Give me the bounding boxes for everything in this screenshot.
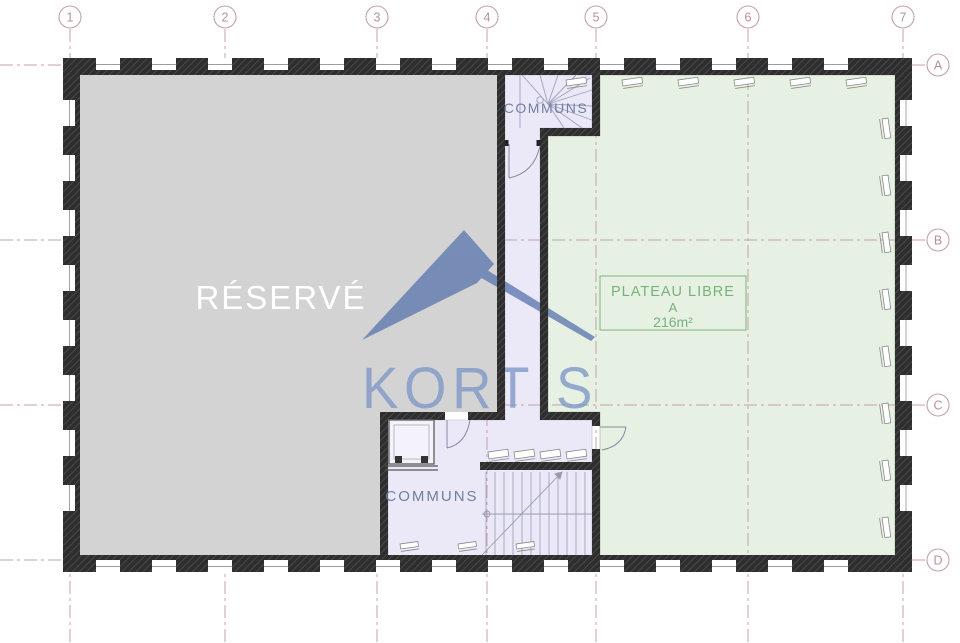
window xyxy=(488,560,512,572)
window xyxy=(544,560,568,572)
window xyxy=(712,58,736,70)
floor-plan-svg: 1 2 3 4 5 6 7 A B C D KORTIS xyxy=(0,0,960,643)
window xyxy=(63,100,75,126)
window xyxy=(320,560,344,572)
grid-label-C: C xyxy=(933,399,942,413)
window xyxy=(656,560,680,572)
window xyxy=(63,155,75,181)
window xyxy=(96,58,120,70)
window xyxy=(264,560,288,572)
window xyxy=(63,430,75,456)
window xyxy=(432,58,456,70)
window xyxy=(656,58,680,70)
grid-label-B: B xyxy=(934,234,942,248)
floor-plan-page: 1 2 3 4 5 6 7 A B C D KORTIS xyxy=(0,0,960,643)
grid-label-3: 3 xyxy=(374,11,381,25)
window xyxy=(208,58,232,70)
window xyxy=(63,485,75,511)
plateau-name: PLATEAU LIBRE xyxy=(611,284,735,300)
wall-stair-room-right xyxy=(592,75,600,136)
communs-top-label: COMMUNS xyxy=(504,100,588,116)
window xyxy=(376,560,400,572)
window xyxy=(320,58,344,70)
window xyxy=(264,58,288,70)
plateau-area: 216m² xyxy=(653,314,693,330)
grid-label-1: 1 xyxy=(67,11,74,25)
window xyxy=(152,560,176,572)
wall-communs-top-a xyxy=(380,412,445,420)
window xyxy=(768,58,792,70)
plateau-unit: A xyxy=(669,300,678,315)
window xyxy=(208,560,232,572)
window xyxy=(544,58,568,70)
window xyxy=(768,560,792,572)
window xyxy=(600,58,624,70)
window xyxy=(488,58,512,70)
grid-label-7: 7 xyxy=(900,11,907,25)
communs-bottom-label: COMMUNS xyxy=(385,488,478,505)
wall-corridor-right xyxy=(540,136,548,420)
wall-stair-room-bottom xyxy=(540,128,600,136)
window xyxy=(96,560,120,572)
grid-label-A: A xyxy=(934,59,943,73)
wall-communs-right-upper xyxy=(592,412,600,426)
window xyxy=(824,58,848,70)
kortis-brand-text: KORTIS xyxy=(362,356,598,421)
window xyxy=(63,320,75,346)
window xyxy=(600,560,624,572)
window xyxy=(432,560,456,572)
grid-label-4: 4 xyxy=(484,11,491,25)
grid-label-6: 6 xyxy=(745,11,752,25)
wall-communs-right-lower xyxy=(592,449,600,557)
wall-sanitary xyxy=(480,462,592,470)
window xyxy=(63,265,75,291)
reserved-label: RÉSERVÉ xyxy=(195,279,366,316)
wall-corridor-left xyxy=(497,75,505,420)
elevator xyxy=(385,420,438,470)
window xyxy=(63,210,75,236)
wall-communs-top-b xyxy=(468,412,505,420)
window xyxy=(152,58,176,70)
grid-label-5: 5 xyxy=(593,11,600,25)
window xyxy=(63,375,75,401)
window xyxy=(376,58,400,70)
grid-label-D: D xyxy=(933,554,942,568)
window xyxy=(712,560,736,572)
window xyxy=(824,560,848,572)
wall-communs-left xyxy=(380,412,388,557)
grid-label-2: 2 xyxy=(222,11,229,25)
